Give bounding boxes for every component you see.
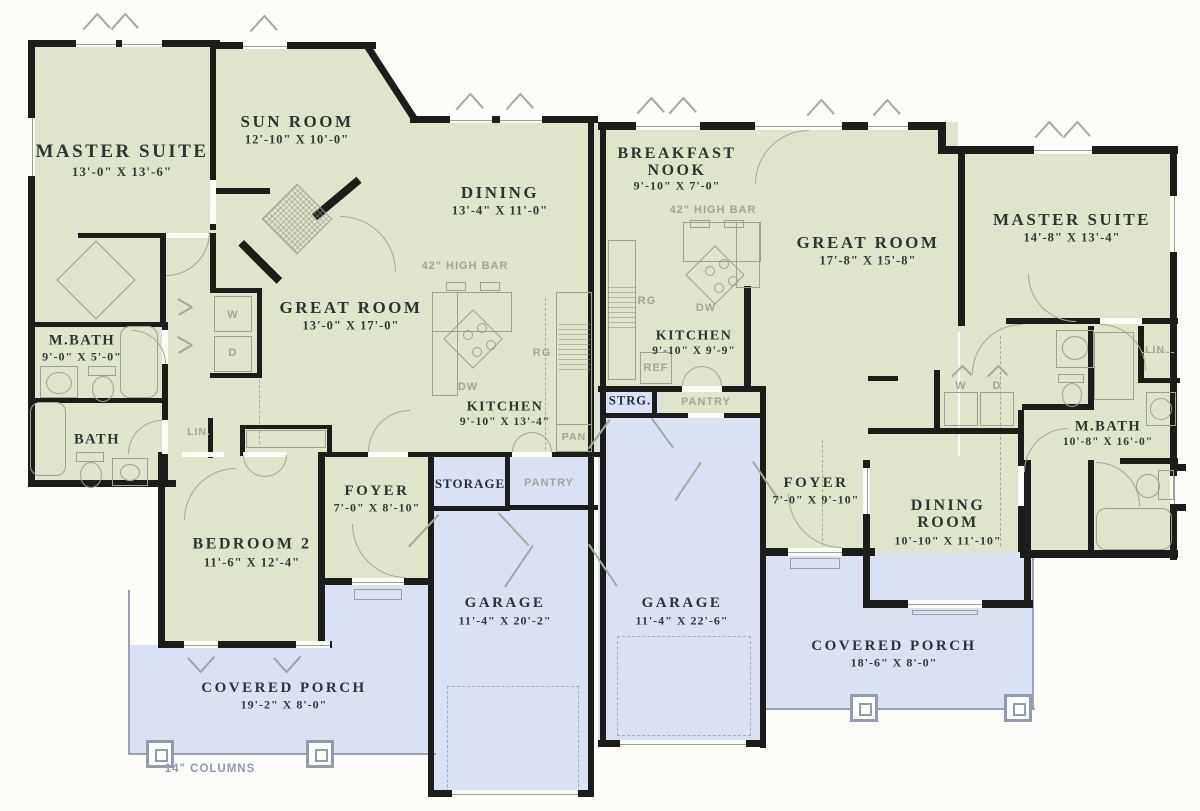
door-sill <box>354 589 402 600</box>
window <box>908 600 982 608</box>
rear-door-opening <box>755 122 807 130</box>
window <box>802 122 842 130</box>
window-chevron <box>669 98 684 114</box>
room-dims-porch-left: 19'-2" X 8'-0" <box>241 698 328 713</box>
burner <box>486 340 496 350</box>
label-pan-left: PAN <box>562 431 586 443</box>
room-dims-foyer-left: 7'-0" X 8'-10" <box>334 501 421 516</box>
window <box>1034 146 1064 154</box>
bathtub <box>30 402 66 476</box>
wall <box>958 154 965 326</box>
sink <box>120 464 140 481</box>
garage-door-outline <box>447 686 579 792</box>
window-chevron <box>263 15 278 31</box>
label-refrigerator-right: REF <box>644 362 669 374</box>
room-label-kitchen-right: KITCHEN <box>656 330 733 345</box>
room-label-mbath-right: M.BATH <box>1075 419 1141 434</box>
label-range-left: RG <box>533 347 552 359</box>
door-opening <box>182 452 224 457</box>
window <box>668 122 700 130</box>
garage-door-opening <box>452 790 578 797</box>
room-dims-great-right: 17'-8" X 15'-8" <box>820 254 917 269</box>
door-sill <box>790 558 840 569</box>
window <box>868 122 908 130</box>
window-chevron <box>96 13 111 29</box>
window <box>1170 196 1177 252</box>
garage-door-opening <box>620 740 746 747</box>
wall <box>760 392 766 748</box>
room-label-dining-right: DINING ROOM <box>888 498 1008 532</box>
window-chevron <box>1063 122 1078 138</box>
porch-column <box>1004 694 1032 722</box>
window-chevron <box>873 100 888 116</box>
label-range-right: RG <box>638 295 657 307</box>
room-dims-mbath-left: 9'-0" X 5'-0" <box>42 350 122 365</box>
window <box>28 118 35 176</box>
wall <box>1138 378 1180 383</box>
porch-edge <box>128 590 130 755</box>
room-label-porch-right: COVERED PORCH <box>811 639 976 655</box>
door-opening <box>162 420 168 454</box>
wall <box>210 288 262 293</box>
room-label-kitchen-left: KITCHEN <box>467 401 544 416</box>
toilet <box>1062 383 1082 407</box>
wall <box>428 506 510 511</box>
door-opening <box>682 386 722 392</box>
window <box>76 40 116 47</box>
room-label-great-left: GREAT ROOM <box>280 299 423 317</box>
window-chevron <box>111 14 126 30</box>
door-opening <box>368 452 408 457</box>
toilet <box>80 462 102 488</box>
window-chevron <box>469 93 484 109</box>
window <box>1062 146 1092 154</box>
room-dims-kitchen-left: 9'-10" X 13'-4" <box>460 416 550 428</box>
burner <box>472 347 482 357</box>
label-dishwasher-left: DW <box>458 381 478 393</box>
bar-stool <box>446 282 466 291</box>
toilet-tank <box>88 366 116 376</box>
room-label-breakfast: BREAKFAST NOOK <box>602 146 752 180</box>
room-label-master-left: MASTER SUITE <box>35 142 208 162</box>
wall <box>78 233 166 238</box>
label-high-bar-left: 42" HIGH BAR <box>422 260 509 272</box>
wall <box>1088 460 1094 554</box>
sink <box>1062 336 1088 360</box>
label-pantry-left: PANTRY <box>524 477 574 489</box>
opening <box>863 468 870 514</box>
window-sill <box>912 610 978 615</box>
door-opening <box>1018 466 1024 506</box>
room-label-bath-left: BATH <box>74 432 120 447</box>
room-label-sunroom: SUN ROOM <box>240 113 353 131</box>
label-dryer-right: D <box>993 380 1002 392</box>
wall <box>257 288 262 378</box>
room-label-mbath-left: M.BATH <box>49 333 115 348</box>
window <box>122 40 162 47</box>
room-dims-kitchen-right: 9'-10" X 9'-9" <box>652 345 736 357</box>
wall <box>1006 318 1178 324</box>
room-label-master-right: MASTER SUITE <box>993 211 1151 229</box>
bathtub <box>1096 508 1172 550</box>
window-chevron <box>250 16 265 32</box>
window-chevron <box>807 100 822 116</box>
room-dims-porch-right: 18'-6" X 8'-0" <box>851 656 938 671</box>
window-chevron <box>519 93 534 109</box>
closet-shelf <box>246 430 326 448</box>
label-pantry-right: PANTRY <box>681 396 731 408</box>
porch-edge <box>765 708 1035 710</box>
washer <box>944 392 978 426</box>
window-chevron <box>682 97 697 113</box>
wall <box>428 452 434 796</box>
label-washer-left: W <box>227 309 238 321</box>
wall <box>600 413 658 418</box>
wall <box>212 188 270 194</box>
wall <box>510 505 598 510</box>
wall <box>210 233 216 290</box>
sink <box>1150 398 1172 420</box>
bar-stool <box>690 220 710 228</box>
room-label-great-right: GREAT ROOM <box>797 234 940 252</box>
room-label-garage-left: GARAGE <box>465 596 546 612</box>
floor-plan: MASTER SUITE 13'-0" X 13'-6" SUN ROOM 12… <box>0 0 1200 811</box>
window <box>184 641 218 648</box>
dryer <box>980 392 1014 426</box>
room-dims-master-right: 14'-8" X 13'-4" <box>1024 231 1121 246</box>
label-washer-right: W <box>955 380 966 392</box>
room-dims-garage-right: 11'-4" X 22'-6" <box>636 614 729 629</box>
window-chevron <box>1035 122 1050 138</box>
window-chevron <box>1076 121 1091 137</box>
window-chevron <box>124 13 139 29</box>
door-opening <box>210 180 216 224</box>
label-columns-note: 14" COLUMNS <box>165 763 256 775</box>
wall <box>1020 550 1178 558</box>
door-opening <box>688 413 724 418</box>
bar-stool <box>724 220 744 228</box>
room-dims-master-left: 13'-0" X 13'-6" <box>72 164 172 180</box>
porch-column <box>850 694 878 722</box>
range <box>608 286 636 328</box>
burner <box>728 276 738 286</box>
room-label-storage: STORAGE <box>435 477 505 491</box>
range <box>558 324 590 370</box>
window <box>500 116 542 123</box>
room-dims-bed2: 11'-6" X 12'-4" <box>204 556 300 571</box>
room-dims-dining-right: 10'-10" X 11'-10" <box>895 534 1002 549</box>
window-chevron <box>456 94 471 110</box>
room-label-foyer-right: FOYER <box>784 476 849 492</box>
porch-fill-right <box>765 553 1032 710</box>
burner <box>463 330 473 340</box>
toilet-tank <box>76 452 104 462</box>
wall <box>28 480 176 487</box>
window-chevron <box>506 94 521 110</box>
label-lin-left: LIN. <box>187 426 211 438</box>
porch-edge <box>128 753 436 755</box>
window-chevron <box>637 98 652 114</box>
window-chevron <box>820 99 835 115</box>
wall <box>212 42 376 49</box>
wall-bump <box>1170 504 1186 511</box>
bar-stool <box>480 282 500 291</box>
window <box>450 116 492 123</box>
wall <box>934 370 940 428</box>
wall <box>210 373 262 378</box>
porch-edge <box>1032 556 1034 710</box>
porch-fill-left-a <box>325 583 430 753</box>
room-dims-garage-left: 11'-4" X 20'-2" <box>459 614 552 629</box>
wall <box>505 452 510 510</box>
room-dims-breakfast: 9'-10" X 7'-0" <box>634 179 721 194</box>
burner <box>705 266 715 276</box>
room-label-foyer-left: FOYER <box>345 484 410 500</box>
window <box>243 42 287 49</box>
door-opening <box>512 452 552 457</box>
window-chevron <box>83 14 98 30</box>
label-high-bar-right: 42" HIGH BAR <box>670 204 757 216</box>
room-dims-foyer-right: 7'-0" X 9'-10" <box>773 493 860 508</box>
room-dims-sunroom: 12'-10" X 10'-0" <box>245 133 349 148</box>
wall <box>240 425 332 429</box>
room-label-bed2: BEDROOM 2 <box>193 537 312 554</box>
room-label-strg: STRG. <box>609 394 651 407</box>
front-door-opening <box>352 578 404 585</box>
wall <box>588 460 594 796</box>
wall <box>744 286 751 388</box>
room-dims-great-left: 13'-0" X 17'-0" <box>303 319 400 334</box>
room-dims-dining-left: 13'-4" X 11'-0" <box>452 204 548 219</box>
label-lin-right: LIN. <box>1145 344 1169 356</box>
toilet <box>1136 474 1160 498</box>
shower <box>1094 332 1134 400</box>
toilet <box>92 376 114 402</box>
room-label-dining-left: DINING <box>461 184 539 202</box>
porch-column <box>306 740 334 768</box>
window-chevron <box>650 97 665 113</box>
sink <box>46 372 72 394</box>
window-chevron <box>886 99 901 115</box>
door-opening <box>1100 318 1142 324</box>
room-label-garage-right: GARAGE <box>642 596 723 612</box>
burner <box>719 259 729 269</box>
wall <box>938 122 946 154</box>
room-label-porch-left: COVERED PORCH <box>201 681 366 697</box>
garage-door-outline <box>617 636 751 736</box>
bathtub <box>120 326 158 398</box>
wall <box>1024 460 1031 606</box>
label-dryer-left: D <box>229 347 238 359</box>
burner <box>714 283 724 293</box>
wall <box>868 376 898 381</box>
front-door-opening <box>788 548 842 556</box>
window-chevron <box>1048 121 1063 137</box>
toilet-tank <box>1058 374 1084 383</box>
wall <box>1022 404 1092 410</box>
wall <box>868 428 1018 434</box>
label-dishwasher-right: DW <box>696 302 716 314</box>
wall <box>318 452 325 648</box>
toilet-tank <box>1158 470 1174 500</box>
burner <box>477 323 487 333</box>
window <box>636 122 668 130</box>
window <box>296 641 330 648</box>
room-dims-mbath-right: 10'-8" X 16'-0" <box>1063 436 1153 448</box>
